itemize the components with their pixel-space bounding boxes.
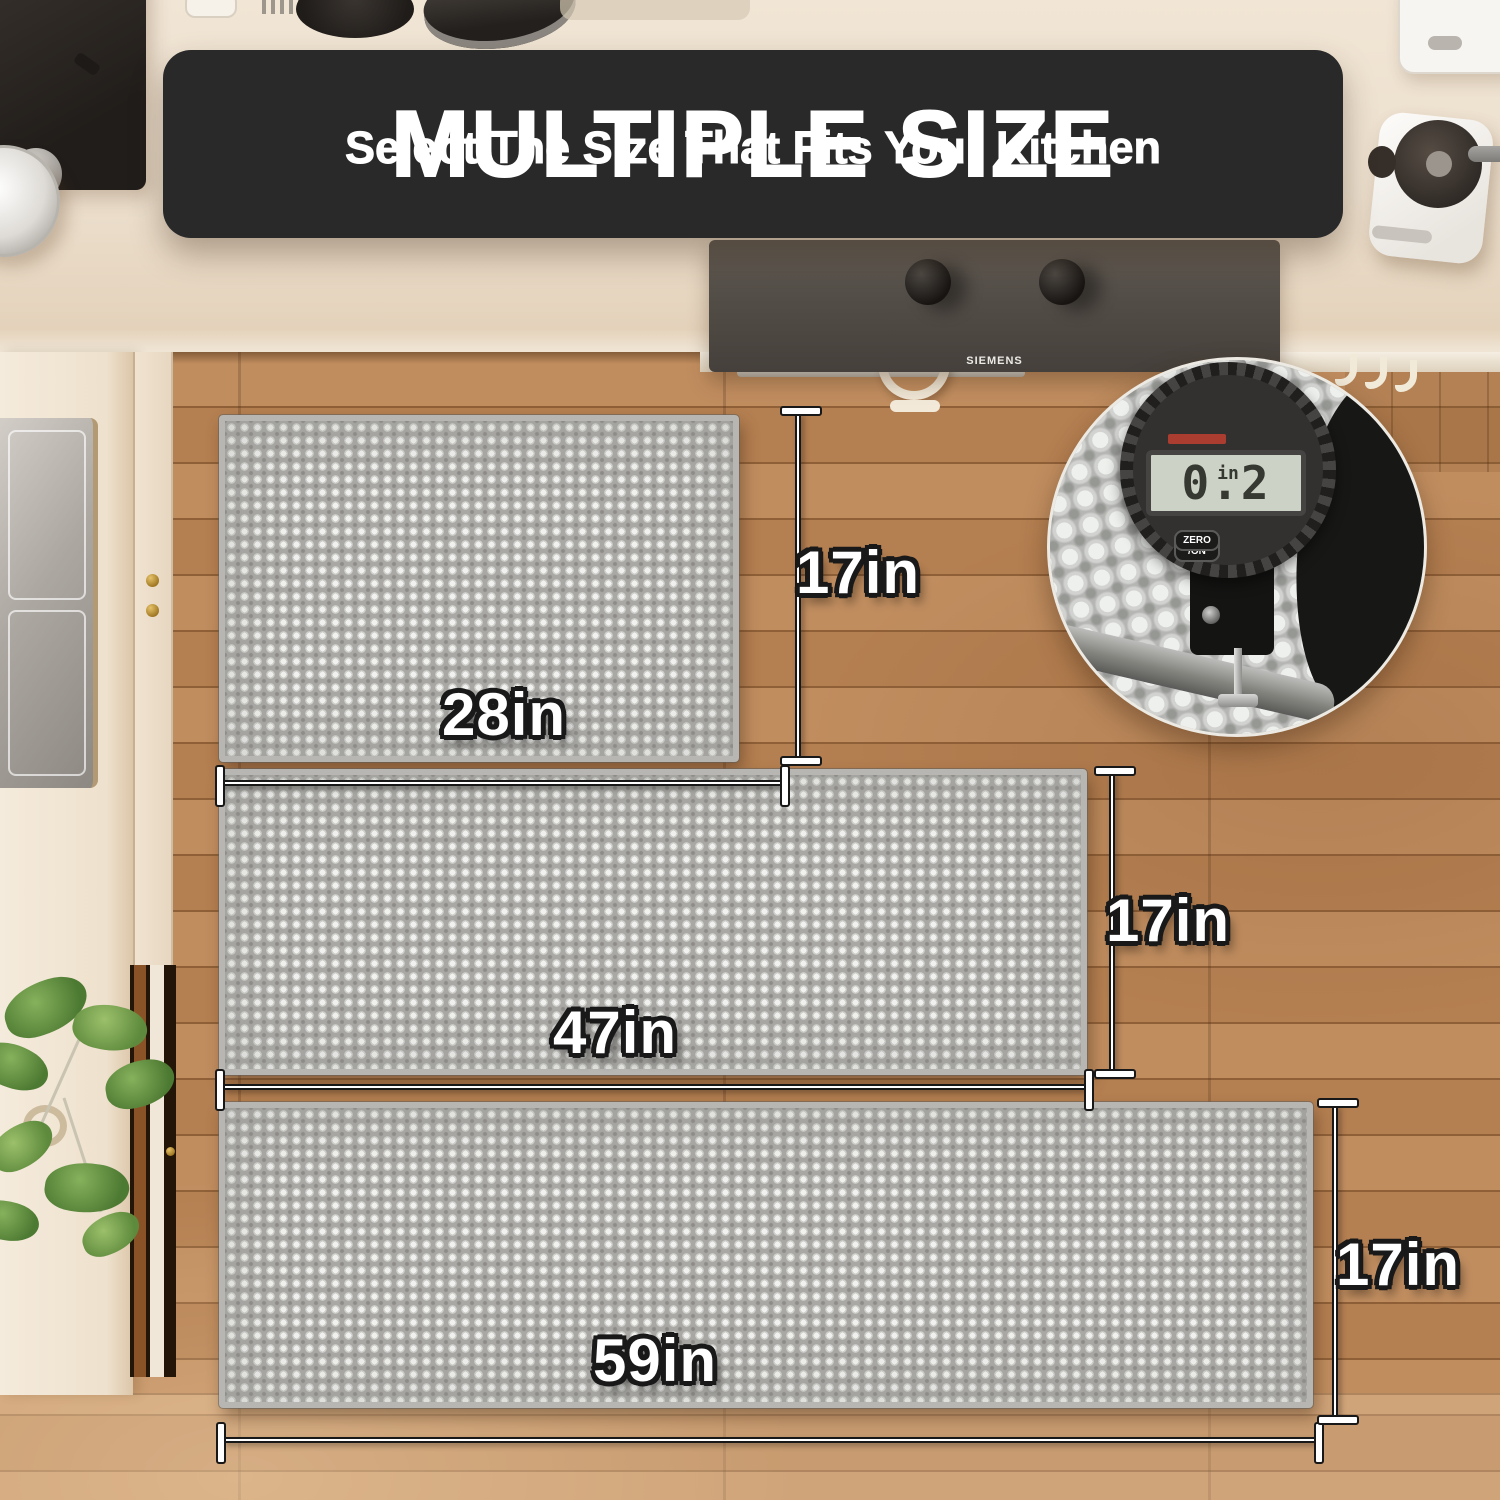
stainless-appliance: [0, 418, 98, 788]
height-label-small: 17in: [733, 538, 983, 607]
width-label-medium: 47in: [490, 998, 740, 1067]
pan: [296, 0, 414, 38]
thickness-gauge-inset: 0.2 in inch /mm OFF /ON ZERO: [1047, 357, 1427, 737]
plant-leaf: [0, 1031, 55, 1103]
height-label-medium: 17in: [1043, 886, 1293, 955]
iron: [420, 0, 580, 57]
kettle-lid-center: [1426, 151, 1452, 177]
gauge-lcd-display: 0.2 in: [1146, 450, 1306, 516]
dim-line-width-medium: [222, 1084, 1087, 1090]
width-label-small: 28in: [379, 680, 629, 749]
dim-line-width-small: [222, 780, 783, 786]
plant-leaf: [0, 1192, 44, 1250]
gauge-brand-mark: [1168, 434, 1226, 444]
cabinet-handle-small: [890, 400, 940, 412]
height-label-large: 17in: [1273, 1230, 1500, 1299]
stove-cooktop: SIEMENS: [709, 240, 1280, 372]
gauge-anvil: [1218, 694, 1258, 707]
stove-knob: [905, 259, 951, 305]
product-image: SIEMENS 28in 17in 47in 17in: [0, 0, 1500, 1500]
gauge-unit: in: [1217, 463, 1239, 484]
cup: [185, 0, 237, 18]
kettle-spout: [1368, 146, 1396, 178]
cabinet-door: [133, 352, 173, 968]
kitchen-scale: [1398, 0, 1500, 74]
kettle-handle: [1468, 146, 1500, 162]
gauge-spindle: [1234, 648, 1242, 696]
cutting-board: [560, 0, 750, 20]
potted-plant: [0, 975, 195, 1305]
stove-knob: [1039, 259, 1085, 305]
cabinet-knob: [146, 574, 159, 587]
banner-subtitle: Select The Size That Fits Your Kitchen: [345, 122, 1161, 174]
appliance-panel: [8, 430, 86, 600]
gauge-screw: [1202, 606, 1220, 624]
headline-banner: MULTIPLE SIZE Select The Size That Fits …: [163, 50, 1343, 238]
scale-display: [1428, 36, 1462, 50]
cabinet-knob: [146, 604, 159, 617]
dim-line-width-large: [223, 1437, 1317, 1443]
appliance-panel: [8, 610, 86, 776]
plant-leaf: [42, 1157, 132, 1218]
plant-leaf: [102, 1055, 179, 1112]
plant-leaf: [76, 1206, 145, 1262]
width-label-large: 59in: [530, 1326, 780, 1395]
gauge-button-zero: ZERO: [1174, 530, 1220, 551]
